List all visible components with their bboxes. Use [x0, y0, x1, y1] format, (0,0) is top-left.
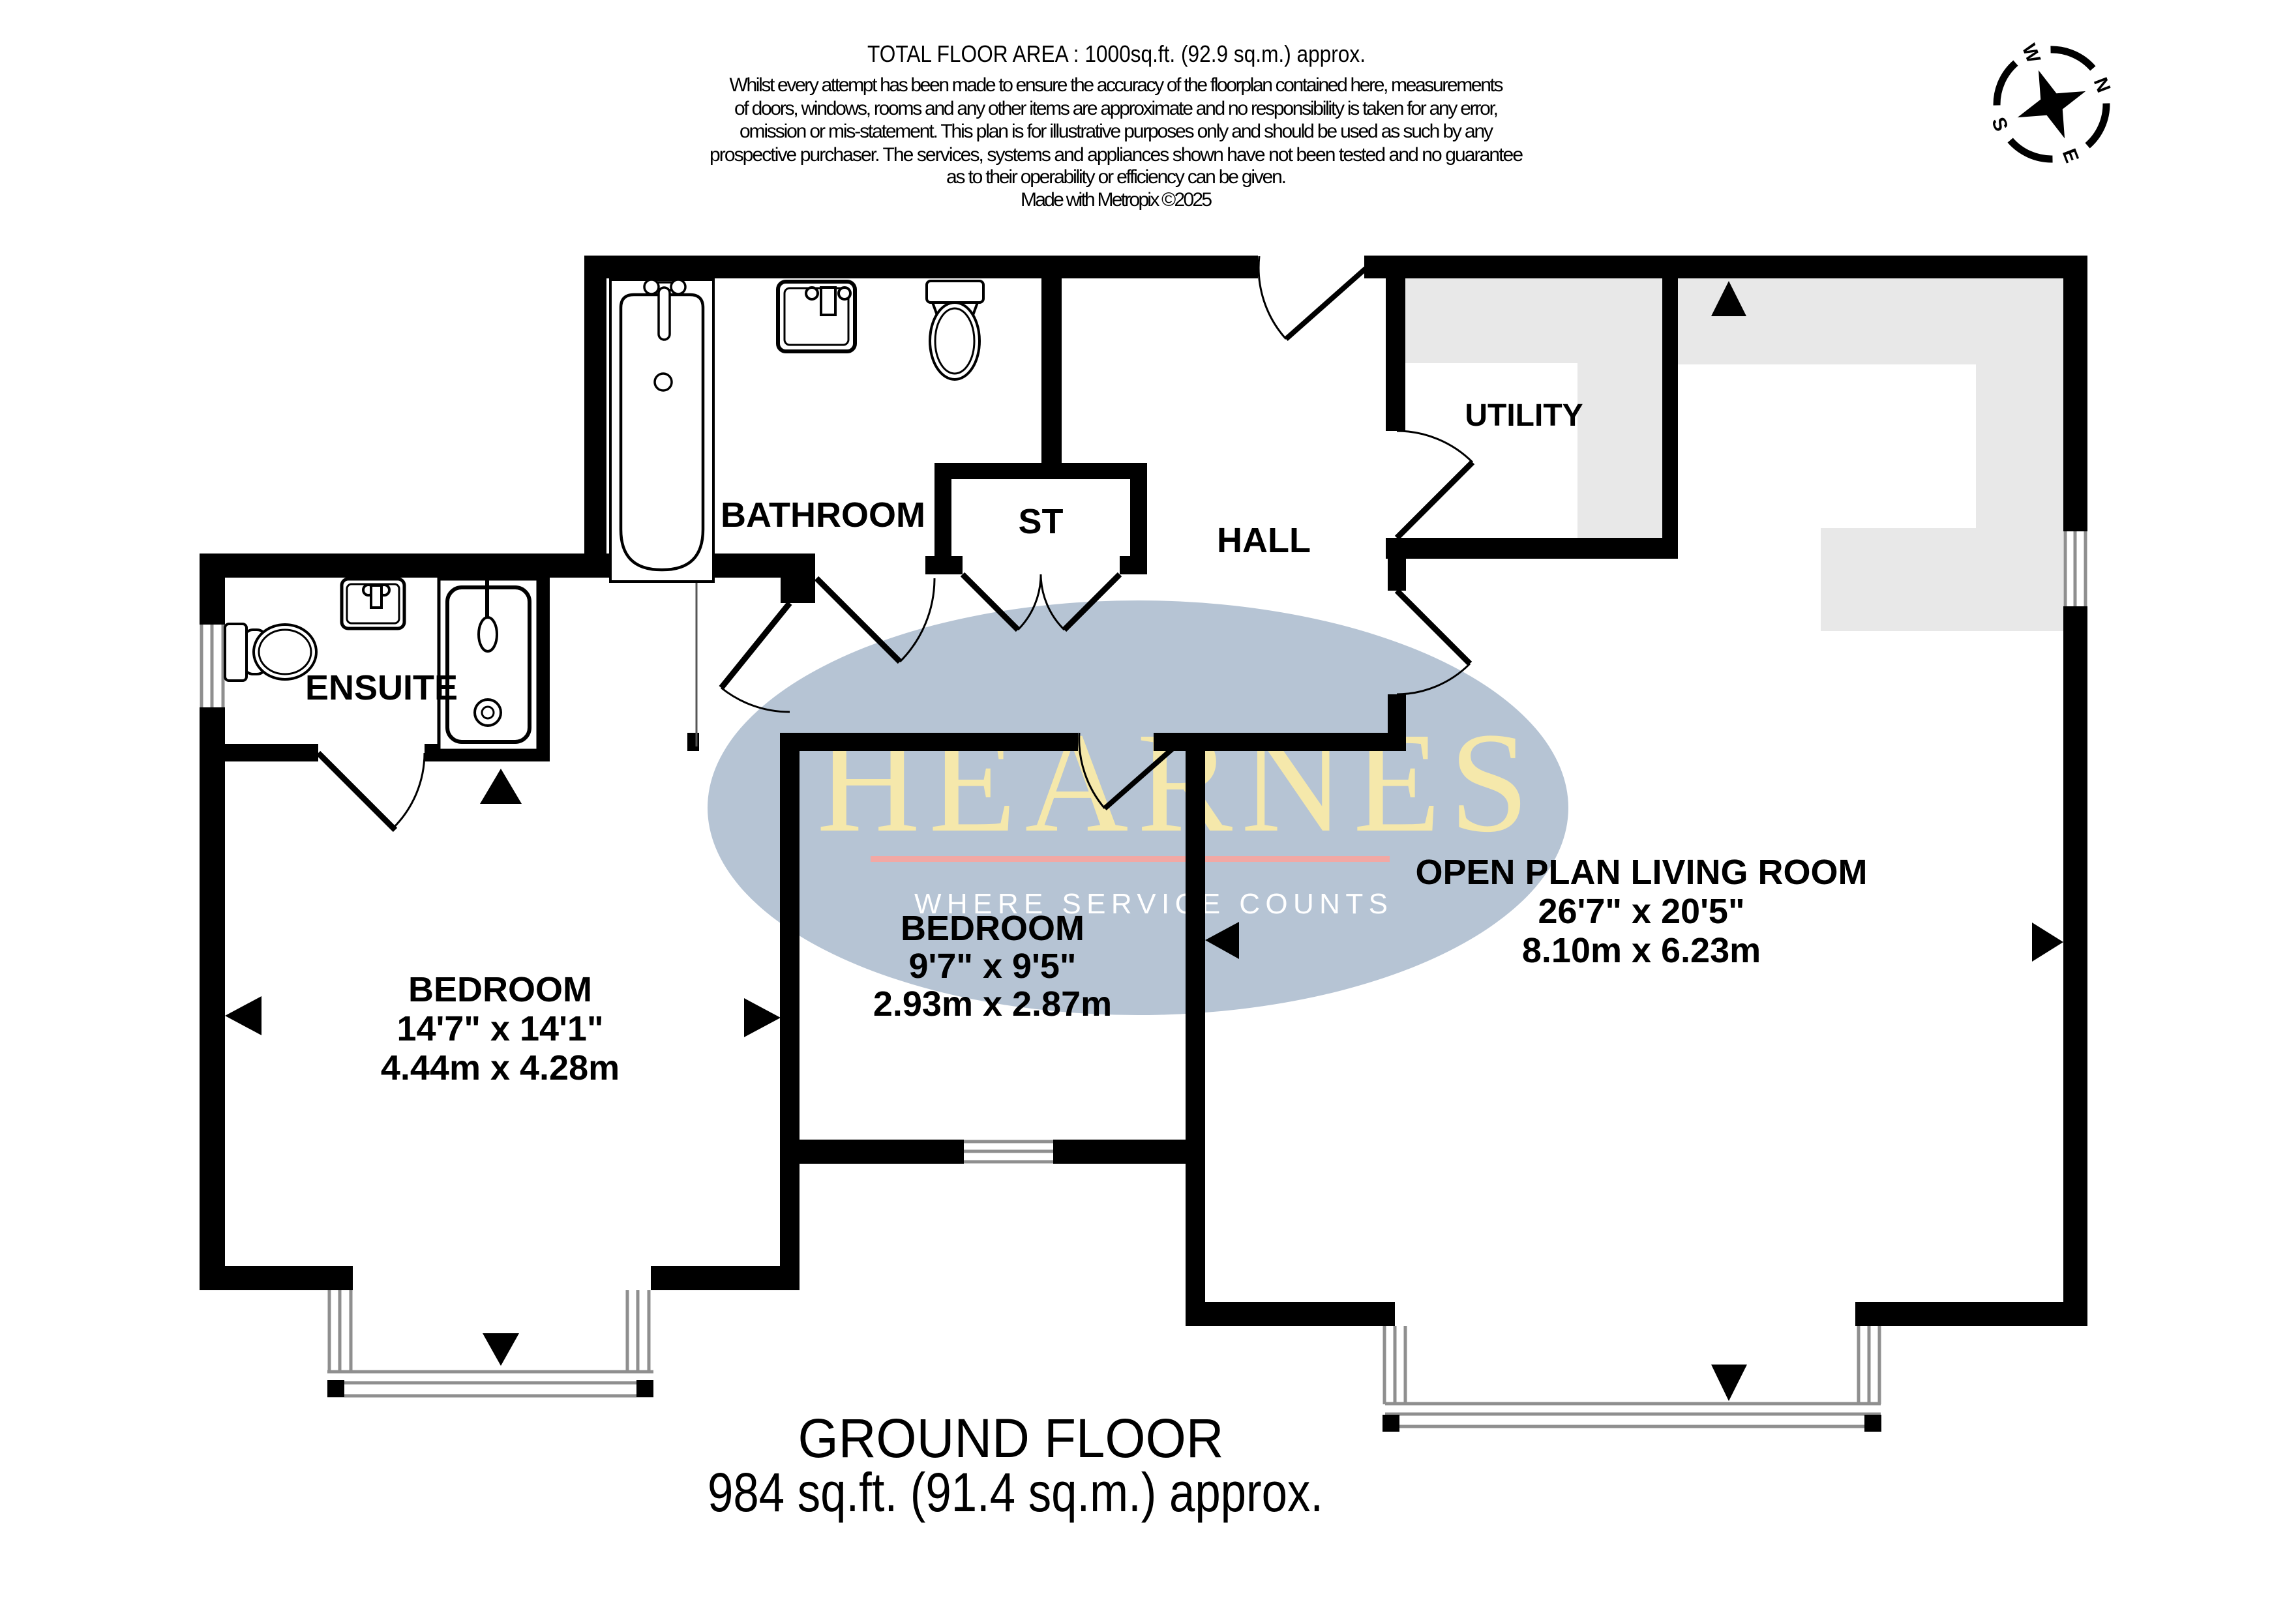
- svg-text:26'7" x 20'5": 26'7" x 20'5": [1538, 892, 1744, 931]
- svg-text:BEDROOM: BEDROOM: [408, 970, 592, 1009]
- svg-text:prospective purchaser. The ser: prospective purchaser. The services, sys…: [710, 144, 1523, 166]
- svg-text:OPEN PLAN LIVING ROOM: OPEN PLAN LIVING ROOM: [1415, 853, 1867, 892]
- svg-text:Made with Metropix ©2025: Made with Metropix ©2025: [1021, 189, 1212, 211]
- svg-text:9'7" x 9'5": 9'7" x 9'5": [908, 947, 1076, 986]
- svg-text:2.93m x 2.87m: 2.93m x 2.87m: [873, 984, 1112, 1024]
- svg-text:ST: ST: [1018, 502, 1063, 541]
- svg-text:of doors, windows, rooms and a: of doors, windows, rooms and any other i…: [734, 98, 1499, 119]
- svg-text:4.44m x 4.28m: 4.44m x 4.28m: [381, 1048, 620, 1087]
- svg-text:Whilst every attempt has been: Whilst every attempt has been made to en…: [730, 74, 1504, 96]
- svg-text:984 sq.ft. (91.4 sq.m.) approx: 984 sq.ft. (91.4 sq.m.) approx.: [708, 1462, 1323, 1523]
- svg-text:HEARNES: HEARNES: [816, 703, 1538, 862]
- svg-text:TOTAL FLOOR AREA : 1000sq.ft.: TOTAL FLOOR AREA : 1000sq.ft. (92.9 sq.m…: [867, 40, 1366, 67]
- svg-text:BEDROOM: BEDROOM: [901, 909, 1084, 948]
- svg-text:BATHROOM: BATHROOM: [721, 495, 925, 535]
- svg-text:UTILITY: UTILITY: [1465, 398, 1583, 433]
- svg-text:14'7" x 14'1": 14'7" x 14'1": [396, 1009, 603, 1048]
- svg-text:HALL: HALL: [1217, 521, 1311, 560]
- svg-text:8.10m x 6.23m: 8.10m x 6.23m: [1522, 931, 1761, 970]
- svg-text:ENSUITE: ENSUITE: [305, 668, 458, 707]
- svg-text:omission or mis-statement. Thi: omission or mis-statement. This plan is …: [740, 121, 1493, 142]
- svg-text:GROUND FLOOR: GROUND FLOOR: [798, 1408, 1224, 1469]
- svg-text:as to their operability or eff: as to their operability or efficiency ca…: [946, 166, 1287, 188]
